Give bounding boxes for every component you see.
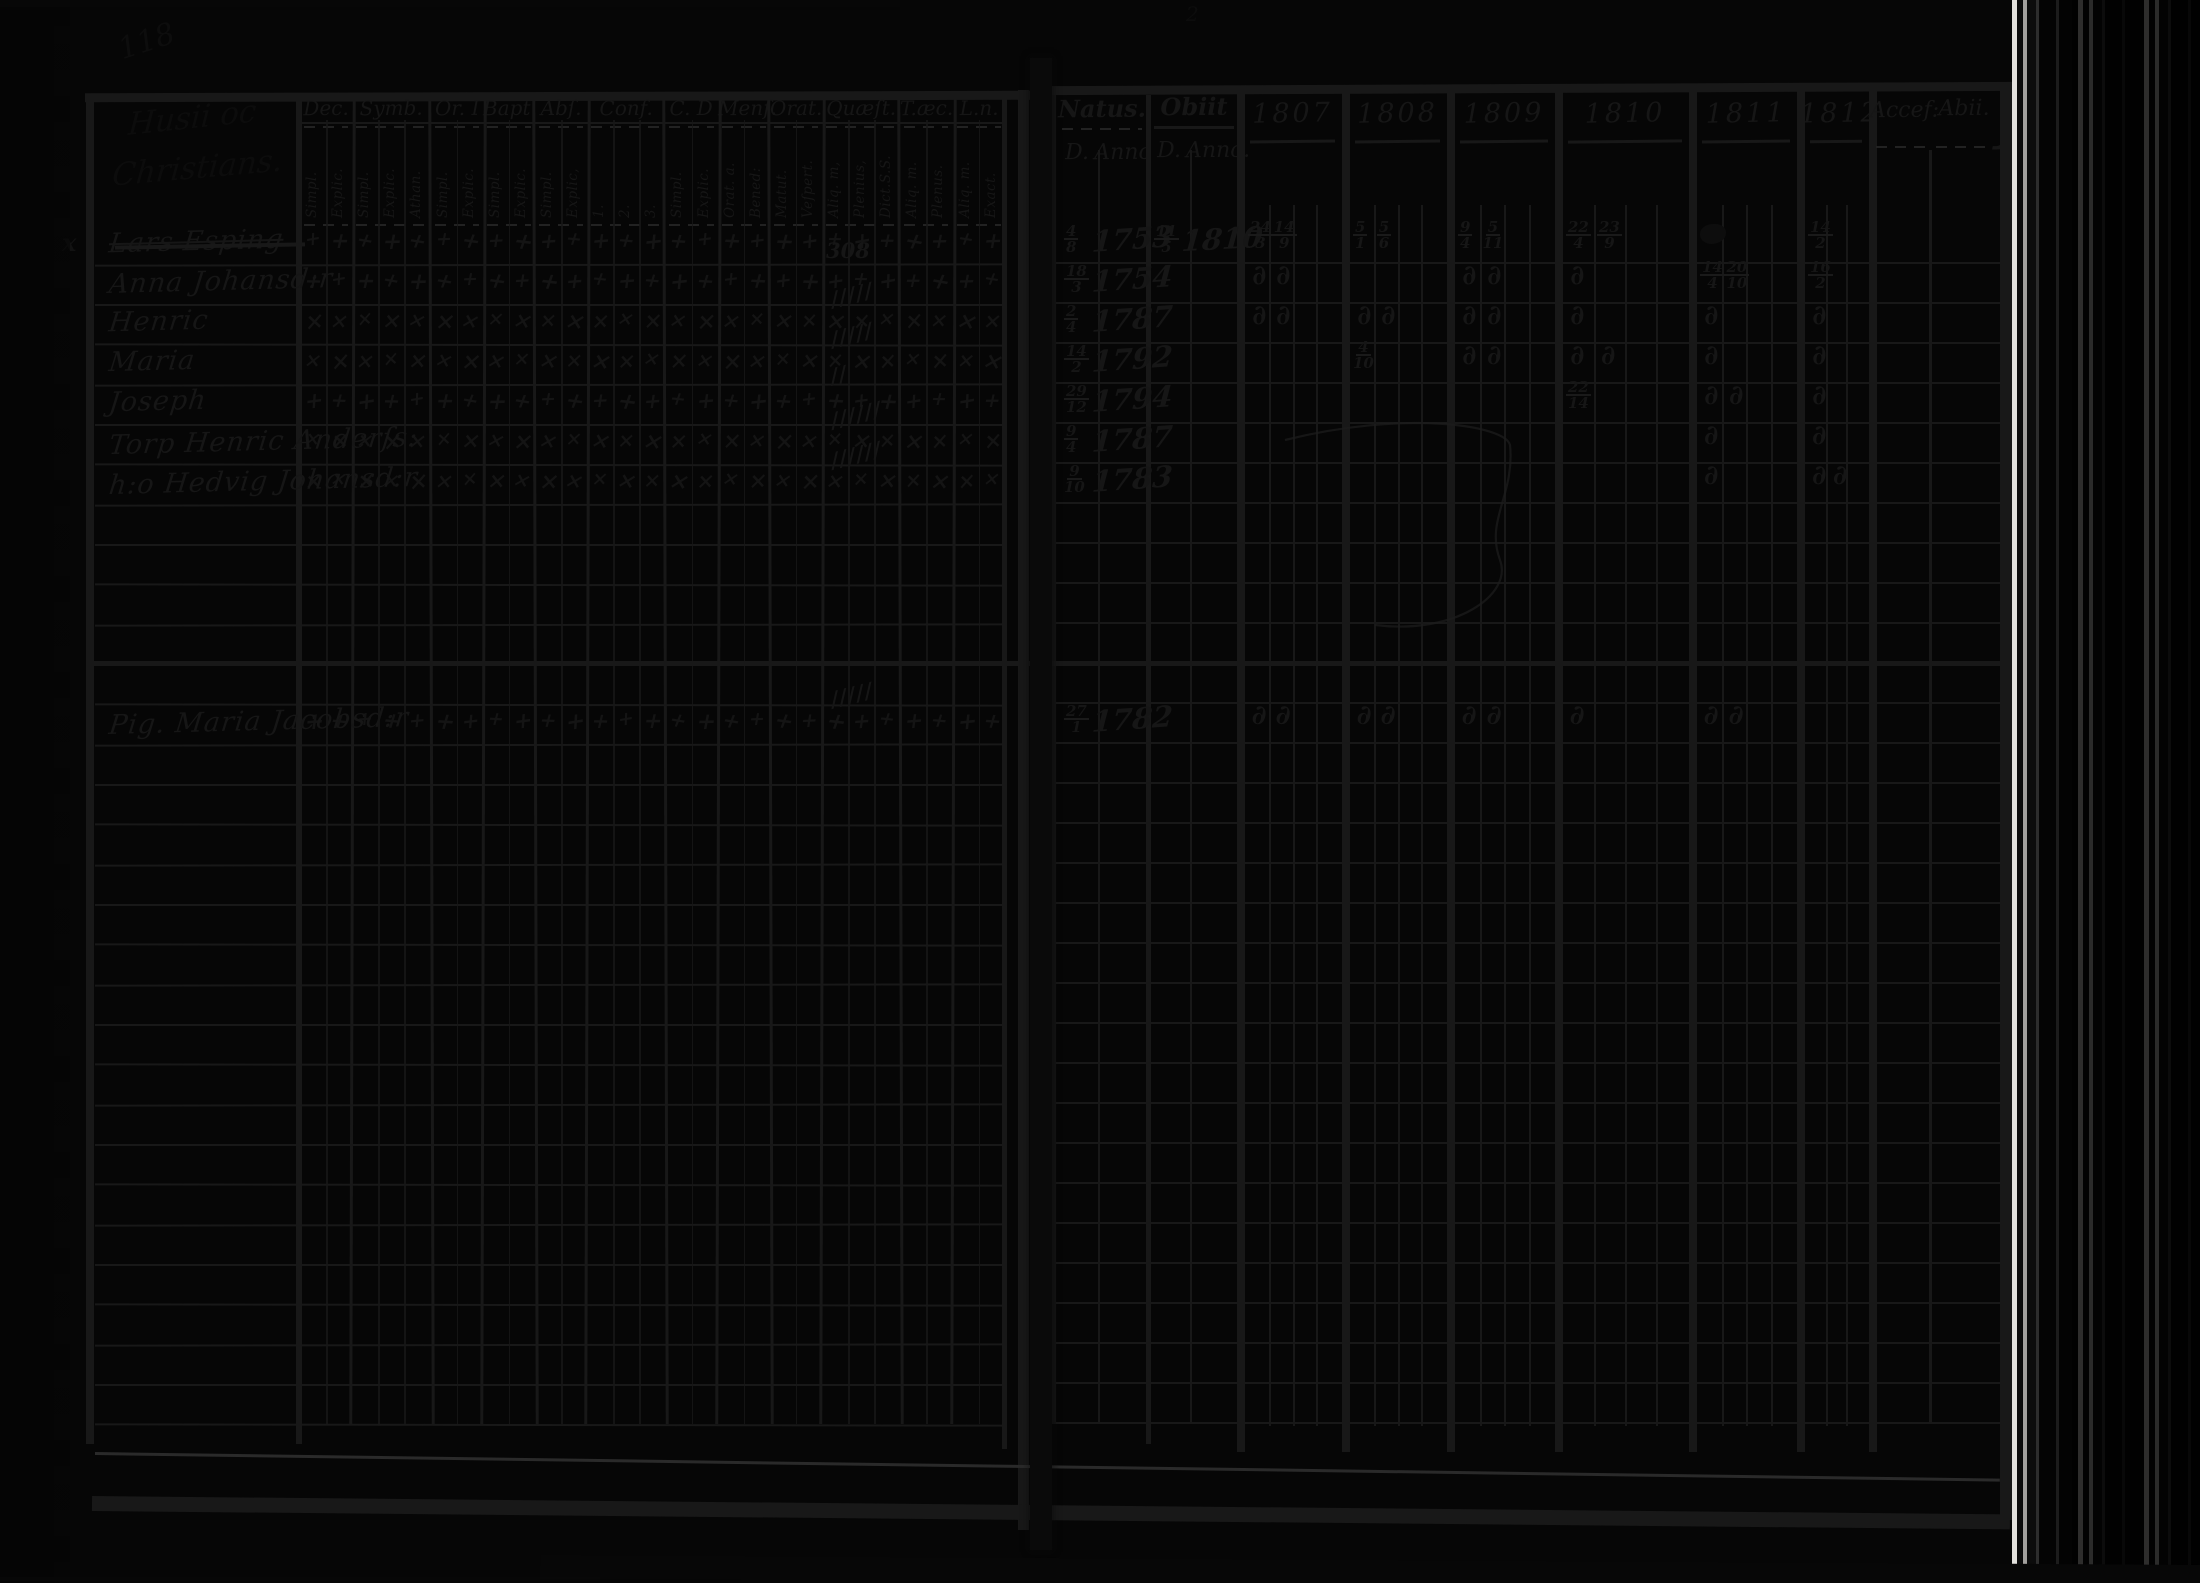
year-label-1808: 1808 <box>1345 97 1451 130</box>
communion-mark: ∂ <box>1379 699 1397 732</box>
exam-mark: × <box>800 307 818 334</box>
year-date-fraction: 239 <box>1597 220 1622 250</box>
communion-mark: ∂ <box>1356 299 1373 331</box>
obiit-day: 115 <box>1154 224 1179 254</box>
subcolumn-line <box>509 120 511 1424</box>
subcolumn-label: Simpl. <box>435 132 451 218</box>
exam-mark: + <box>954 227 978 250</box>
natus-day: 910 <box>1064 464 1085 494</box>
exam-mark: × <box>905 467 923 494</box>
left-page-left-border <box>86 95 94 1444</box>
acces-dashes <box>1876 146 1926 148</box>
exam-mark: × <box>538 307 559 332</box>
year-date-fraction: 142 <box>1808 220 1833 250</box>
exam-mark: × <box>356 466 376 495</box>
year-group-border <box>1447 88 1455 1452</box>
subcolumn-label: Aliq. m. <box>904 132 920 218</box>
subcolumn-label: 1. <box>591 132 607 218</box>
year-subcolumn-line <box>1480 205 1482 1426</box>
subcolumn-label: Explic. <box>382 132 398 218</box>
row-line <box>95 904 1005 906</box>
film-edge-left <box>0 0 54 1583</box>
exam-mark: + <box>615 228 639 253</box>
column-group-label-7: Menſ. <box>717 96 769 120</box>
page-number: 118 <box>114 16 179 67</box>
exam-mark: × <box>773 427 795 456</box>
subcolumn-label: Explic. <box>330 132 346 218</box>
exam-mark: × <box>957 466 976 494</box>
column-group-label-10: T.æc. <box>900 96 952 120</box>
subcolumn-label: Explic, <box>565 132 581 218</box>
exam-mark: × <box>850 348 876 375</box>
row-line <box>95 1103 1005 1106</box>
exam-mark: × <box>928 468 954 495</box>
row-line <box>95 544 1005 546</box>
left-page-right-border <box>1002 95 1007 1449</box>
exam-mark: × <box>407 428 430 453</box>
year-subcolumn-line <box>1293 205 1295 1426</box>
communion-mark: ∂ <box>1812 460 1827 491</box>
exam-mark: × <box>693 348 717 373</box>
exam-mark: × <box>643 307 665 335</box>
exam-mark: + <box>564 267 585 294</box>
year-subcolumn-line <box>1746 205 1748 1426</box>
exam-mark: + <box>538 227 559 254</box>
exam-mark: × <box>405 307 431 333</box>
row-line <box>95 1264 1005 1266</box>
obiit-anno-label: Anno. <box>1186 138 1244 164</box>
exam-mark: × <box>409 466 429 497</box>
year-underline-1812 <box>1810 140 1862 144</box>
exam-mark: × <box>719 308 744 334</box>
communion-mark: ∂ <box>1275 260 1292 292</box>
exam-mark: + <box>771 228 797 255</box>
row-line <box>95 863 1005 866</box>
exam-mark: + <box>618 706 634 731</box>
year-subcolumn-line <box>1374 205 1376 1426</box>
exam-mark: + <box>851 707 872 734</box>
subcolumn-label: Aliq. m. <box>957 132 973 218</box>
column-group-label-11: L.n. <box>952 96 1004 120</box>
exam-mark: + <box>879 266 898 296</box>
exam-mark: × <box>435 426 451 451</box>
exam-mark: × <box>407 348 431 374</box>
communion-mark: ∂ <box>1832 460 1847 491</box>
column-group-label-2: Or. I <box>430 96 482 120</box>
exam-mark: + <box>328 388 351 412</box>
exam-mark: × <box>695 307 717 336</box>
subcolumn-line <box>613 120 615 1424</box>
exam-mark: × <box>931 346 950 376</box>
subcolumn-label: Plenius, <box>852 132 868 218</box>
natus-year: 1754 <box>1091 259 1174 299</box>
exam-mark: × <box>564 428 584 451</box>
exam-mark: + <box>926 267 955 296</box>
year-subcolumn-line <box>1269 205 1271 1426</box>
year-label-1807: 1807 <box>1240 97 1346 130</box>
exam-mark: + <box>980 708 1005 734</box>
exam-mark: + <box>486 227 507 252</box>
exam-mark: + <box>905 386 924 414</box>
row-line <box>95 1024 1005 1026</box>
exam-mark: × <box>745 428 769 453</box>
exam-mark: × <box>983 426 1002 456</box>
film-edge-right <box>2012 0 2200 1583</box>
year-label-1810: 1810 <box>1558 97 1693 130</box>
row-line <box>95 1303 1005 1306</box>
exam-mark: + <box>591 227 613 255</box>
examination-register-table: 118Husii ocChristians.2xDec.Simpl.Explic… <box>0 0 2200 1583</box>
subcolumn-label: Explic. <box>461 132 477 218</box>
subcolumn-label: Orat. a. <box>722 132 738 218</box>
exam-mark: + <box>407 268 432 295</box>
exam-mark: + <box>331 266 347 291</box>
exam-mark: × <box>981 308 1003 333</box>
year-subcolumn-line <box>1398 205 1400 1426</box>
exam-mark: × <box>955 348 977 372</box>
stray-mark-top-right: 2 <box>1186 2 1199 26</box>
exam-mark: + <box>981 388 1003 412</box>
column-group-label-6: C. D <box>665 96 717 120</box>
exam-mark: + <box>981 228 1004 255</box>
subcolumn-dashes-5 <box>591 224 661 226</box>
column-group-label-5: Conf. <box>587 96 666 121</box>
exam-mark: × <box>747 467 769 495</box>
exam-mark: + <box>718 707 745 734</box>
natus-day: 48 <box>1064 224 1078 254</box>
row-line <box>95 623 1005 626</box>
exam-mark: + <box>589 267 612 290</box>
year-subcolumn-line <box>1504 205 1506 1426</box>
communion-mark: ∂ <box>1356 699 1373 731</box>
exam-mark: × <box>590 307 611 334</box>
right-page-right-border <box>2000 88 2012 1520</box>
row-line <box>95 823 1005 826</box>
exam-mark: × <box>955 428 976 450</box>
year-date-fraction: 224 <box>1566 220 1591 250</box>
year-subcolumn-line <box>1594 205 1596 1426</box>
communion-mark: ∂ <box>1703 420 1719 451</box>
row-line <box>95 784 1005 786</box>
natus-year: 1782 <box>1091 699 1174 739</box>
exam-mark: + <box>641 268 665 293</box>
natus-right-border <box>1146 95 1151 1444</box>
subcolumn-label: Dict.S.S. <box>878 132 894 218</box>
exam-mark: + <box>617 267 639 295</box>
exam-mark: + <box>457 227 484 255</box>
natus-anno-label: Anno <box>1094 140 1152 166</box>
year-date-fraction: 149 <box>1272 220 1297 250</box>
exam-mark: + <box>381 228 406 255</box>
communion-mark: ∂ <box>1461 299 1478 331</box>
natus-year: 1787 <box>1091 419 1174 459</box>
exam-mark: + <box>800 226 819 254</box>
exam-mark: + <box>643 227 665 256</box>
subcolumn-line <box>457 120 459 1424</box>
column-group-label-8: Orat. <box>770 96 822 120</box>
exam-mark: + <box>353 227 379 253</box>
year-underline-1808 <box>1355 140 1440 144</box>
page-gutter <box>1030 58 1052 1550</box>
exam-mark: + <box>590 387 611 412</box>
exam-mark: × <box>852 467 870 491</box>
exam-mark: × <box>952 307 981 336</box>
exam-mark: × <box>457 307 484 334</box>
exam-mark: × <box>929 308 951 332</box>
exam-mark: + <box>929 228 951 253</box>
communion-mark: ∂ <box>1485 699 1503 732</box>
exam-mark: + <box>562 387 589 415</box>
subcolumn-line <box>926 120 928 1424</box>
subcolumn-label: Simpl. <box>487 132 503 218</box>
exam-mark: × <box>357 306 373 331</box>
exam-mark: + <box>747 708 767 731</box>
row-line <box>95 1384 1005 1386</box>
year-subcolumn-line <box>1625 205 1627 1426</box>
communion-mark: ∂ <box>1811 340 1828 372</box>
year-underline-1809 <box>1460 140 1548 144</box>
exam-mark: × <box>667 308 691 333</box>
natus-label: Natus. <box>1056 94 1148 124</box>
year-group-border <box>1797 88 1805 1452</box>
exam-mark: + <box>589 708 612 733</box>
exam-mark: + <box>460 268 480 291</box>
exam-mark: × <box>879 346 898 374</box>
communion-mark: ∂ <box>1274 699 1292 732</box>
exam-mark: + <box>380 388 403 413</box>
year-underline-1811 <box>1702 140 1790 144</box>
acces-label: Accef: <box>1870 98 1932 124</box>
column-group-dashes-5 <box>591 126 661 128</box>
exam-mark: + <box>667 228 692 254</box>
year-date-fraction: 2010 <box>1725 260 1750 290</box>
year-subcolumn-line <box>1771 205 1773 1426</box>
subcolumn-line <box>744 120 746 1424</box>
communion-mark: ∂ <box>1811 420 1827 451</box>
obiit-underline <box>1154 126 1234 129</box>
exam-mark: + <box>719 228 744 255</box>
year-label-1812: 1812 <box>1800 97 1873 129</box>
natus-inner-line <box>1098 150 1100 1424</box>
resident-name: Maria <box>107 345 197 378</box>
natus-dashes <box>1062 128 1142 130</box>
exam-mark: × <box>903 348 924 370</box>
column-group-label-3: Bapt. <box>483 96 535 120</box>
natus-day: 183 <box>1064 264 1089 294</box>
exam-mark: + <box>305 226 321 251</box>
subcolumn-line <box>692 120 694 1424</box>
exam-mark: × <box>642 467 663 492</box>
communion-mark: ∂ <box>1251 699 1268 731</box>
row-line <box>95 1223 1005 1226</box>
exam-mark: + <box>379 267 405 293</box>
year-subcolumn-line <box>1421 205 1423 1426</box>
year-subcolumn-line <box>1316 205 1318 1426</box>
column-group-dashes-9 <box>826 126 896 128</box>
communion-mark: ∂ <box>1703 380 1719 412</box>
exam-mark: × <box>695 467 716 494</box>
subcolumn-label: Simpl. <box>669 132 685 218</box>
row-line <box>95 983 1005 986</box>
row-line <box>95 503 1005 506</box>
exam-mark: + <box>643 387 664 414</box>
exam-mark: + <box>408 707 427 733</box>
exam-mark: + <box>799 707 820 732</box>
exam-mark: + <box>483 267 510 295</box>
communion-mark: ∂ <box>1704 460 1719 491</box>
exam-mark: × <box>304 467 324 495</box>
column-group-label-9: Quæſt. <box>822 96 901 121</box>
exam-mark: × <box>330 426 350 455</box>
communion-mark: ∂ <box>1460 259 1478 291</box>
exam-mark: × <box>693 427 716 450</box>
exam-mark: × <box>535 347 562 375</box>
exam-mark: + <box>512 267 533 292</box>
row-line <box>95 583 1005 586</box>
year-group-border <box>1689 88 1697 1452</box>
exam-mark: + <box>537 708 560 732</box>
exam-mark: × <box>564 347 585 372</box>
subcolumn-label: Veſpert. <box>800 132 816 218</box>
exam-mark: + <box>431 267 458 294</box>
exam-mark: + <box>669 267 691 296</box>
abii-dashes <box>1936 146 1992 148</box>
resident-name: Henric <box>107 305 210 339</box>
subcolumn-dashes-1 <box>356 224 426 226</box>
exam-mark: × <box>459 348 484 375</box>
exam-mark: + <box>877 228 899 252</box>
year-subcolumn-line <box>1846 205 1848 1426</box>
year-subcolumn-line <box>1529 205 1531 1426</box>
subcolumn-label: Explic. <box>696 132 712 218</box>
year-underline-1810 <box>1568 139 1682 143</box>
stray-pen-scribble <box>1255 400 1575 660</box>
row-line <box>95 743 1005 746</box>
exam-mark: × <box>381 308 405 334</box>
subcolumn-line <box>378 120 380 1424</box>
exam-mark: × <box>745 348 770 374</box>
exam-mark: × <box>771 468 795 493</box>
communion-mark: ∂ <box>1811 380 1827 412</box>
quaest-note: 308 <box>826 238 870 263</box>
exam-mark: + <box>535 267 563 295</box>
exam-mark: × <box>537 468 562 495</box>
exam-mark: × <box>433 468 456 493</box>
obiit-d-label: D. <box>1148 138 1190 163</box>
exam-mark: × <box>485 468 509 494</box>
row-line <box>95 343 1005 346</box>
exam-mark: × <box>905 306 924 336</box>
communion-mark: ∂ <box>1703 699 1720 731</box>
exam-mark: + <box>409 386 425 411</box>
row-line <box>95 1183 1005 1186</box>
exam-mark: × <box>383 346 399 371</box>
subcolumn-line <box>848 120 850 1424</box>
year-date-fraction: 2214 <box>1566 380 1591 410</box>
year-underline-1807 <box>1250 140 1335 144</box>
exam-mark: + <box>696 227 714 251</box>
exam-mark: × <box>302 348 325 372</box>
year-label-1811: 1811 <box>1692 97 1801 130</box>
exam-mark: × <box>876 468 901 495</box>
exam-mark: × <box>774 347 792 371</box>
exam-mark: + <box>405 227 432 254</box>
exam-mark: + <box>433 388 457 414</box>
exam-mark: × <box>459 428 483 454</box>
communion-mark: ∂ <box>1811 299 1828 331</box>
exam-mark: × <box>512 348 532 371</box>
exam-mark: × <box>588 427 615 455</box>
communion-mark: ∂ <box>1485 260 1502 292</box>
exam-mark: + <box>770 707 797 735</box>
exam-mark: + <box>642 708 666 734</box>
exam-mark: × <box>354 348 377 373</box>
left-page-edge-heavy <box>1018 90 1029 1530</box>
exam-mark: + <box>719 388 743 413</box>
subcolumn-line <box>326 120 328 1424</box>
exam-mark: + <box>538 388 558 411</box>
exam-mark: + <box>565 706 585 737</box>
exam-mark: + <box>693 268 718 294</box>
exam-mark: + <box>955 268 977 293</box>
exam-mark: + <box>771 388 796 414</box>
year-date-fraction: 511 <box>1483 220 1504 250</box>
exam-mark: + <box>509 387 536 414</box>
exam-mark: + <box>328 228 352 254</box>
communion-mark: ∂ <box>1569 299 1586 331</box>
resident-name: Lars Esping <box>107 224 285 260</box>
communion-mark: ∂ <box>1275 300 1291 332</box>
exam-mark: × <box>771 308 796 335</box>
exam-mark: × <box>981 468 1002 490</box>
column-group-dashes-1 <box>356 126 426 128</box>
exam-mark: + <box>903 268 925 292</box>
exam-mark: × <box>669 347 691 375</box>
exam-mark: × <box>535 427 562 454</box>
exam-mark: × <box>721 427 743 455</box>
communion-mark: ∂ <box>1600 340 1616 371</box>
year-date-fraction: 410 <box>1353 340 1374 370</box>
subcolumn-label: Aliq. m, <box>826 132 842 218</box>
exam-mark: + <box>957 386 976 416</box>
communion-mark: ∂ <box>1569 699 1586 731</box>
exam-mark: × <box>666 467 694 495</box>
subcolumn-line <box>874 120 876 1424</box>
exam-mark: × <box>931 426 950 454</box>
exam-mark: × <box>877 308 898 330</box>
exam-mark: + <box>876 707 899 730</box>
year-date-fraction: 243 <box>1248 220 1273 250</box>
row-line <box>95 1063 1005 1066</box>
year-subcolumn-line <box>1656 205 1658 1426</box>
exam-mark: × <box>721 347 743 376</box>
exam-mark: × <box>433 308 458 335</box>
communion-mark: ∂ <box>1380 300 1396 332</box>
exam-mark: × <box>483 347 510 374</box>
exam-mark: × <box>590 468 610 491</box>
communion-mark: ∂ <box>1486 300 1502 332</box>
exam-mark: + <box>980 267 1004 290</box>
communion-mark: ∂ <box>1703 340 1720 372</box>
exam-mark: × <box>616 347 637 374</box>
exam-mark: + <box>356 707 375 731</box>
exam-mark: × <box>616 427 637 452</box>
year-group-border <box>1237 88 1245 1452</box>
natus-year: 1794 <box>1091 379 1174 419</box>
subcolumn-label: Bened: <box>748 132 764 218</box>
obiit-label: Obiit <box>1148 92 1240 122</box>
year-date-fraction: 162 <box>1808 260 1833 290</box>
